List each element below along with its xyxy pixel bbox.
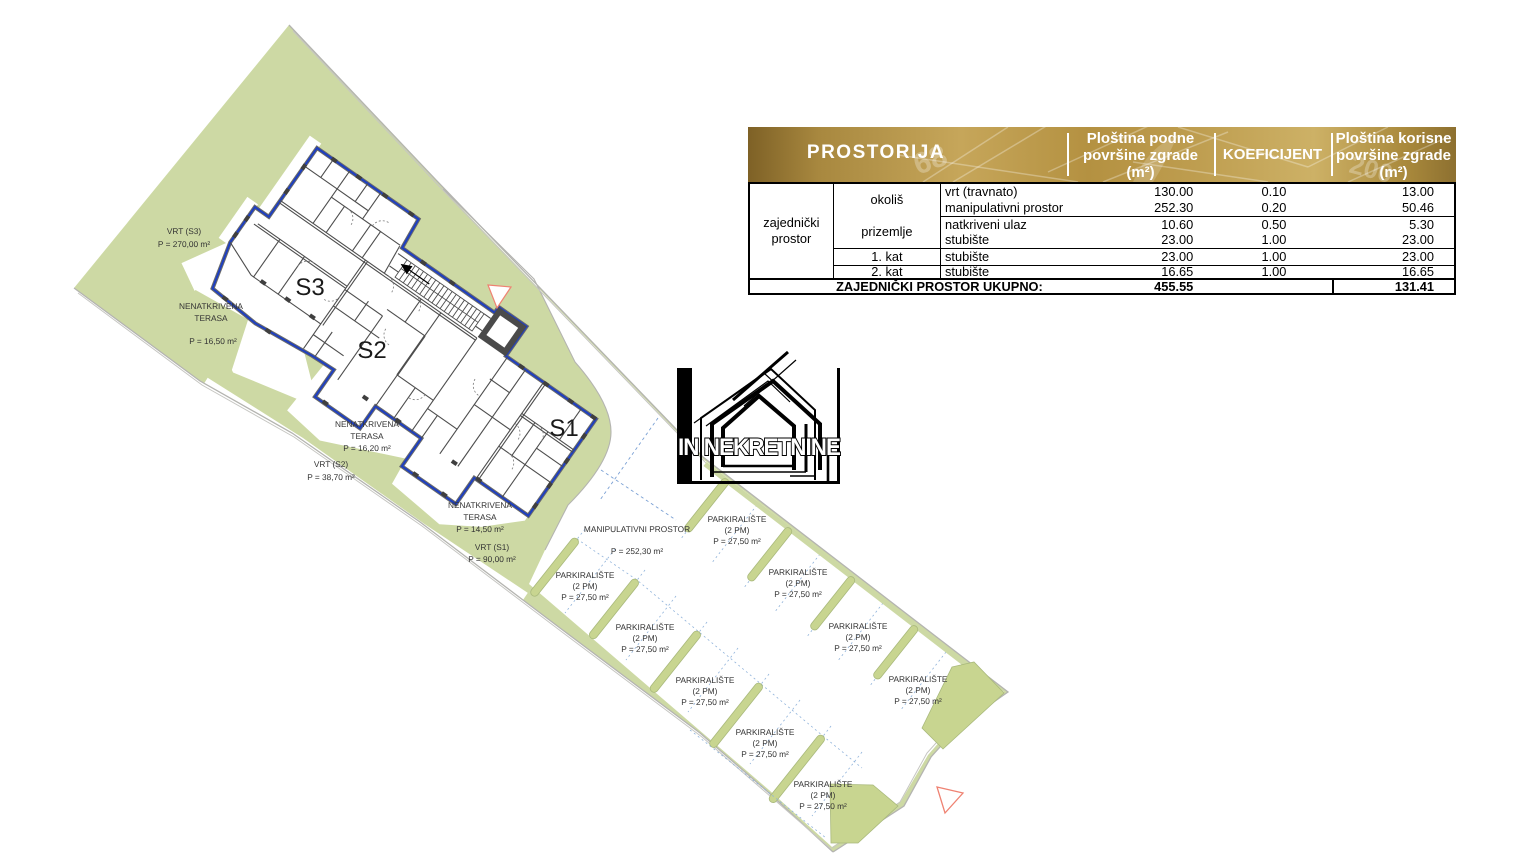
svg-text:P = 16,50 m²: P = 16,50 m² [189,336,237,346]
svg-text:(2 PM): (2 PM) [693,686,718,696]
svg-text:P = 27,50 m²: P = 27,50 m² [894,696,942,706]
svg-text:P = 27,50 m²: P = 27,50 m² [834,643,882,653]
svg-text:PARKIRALIŠTE: PARKIRALIŠTE [736,727,795,737]
svg-text:S2: S2 [357,337,386,364]
svg-text:NENATKRIVENA: NENATKRIVENA [448,500,512,510]
svg-text:P = 27,50 m²: P = 27,50 m² [774,589,822,599]
svg-text:P = 27,50 m²: P = 27,50 m² [561,592,609,602]
svg-text:P = 27,50 m²: P = 27,50 m² [681,697,729,707]
svg-text:PARKIRALIŠTE: PARKIRALIŠTE [769,567,828,577]
svg-text:P = 27,50 m²: P = 27,50 m² [741,749,789,759]
svg-text:P = 27,50 m²: P = 27,50 m² [799,801,847,811]
svg-text:(2 PM): (2 PM) [906,685,931,695]
svg-text:PARKIRALIŠTE: PARKIRALIŠTE [794,779,853,789]
svg-text:P = 252,30 m²: P = 252,30 m² [611,546,663,556]
svg-text:VRT (S1): VRT (S1) [475,542,510,552]
svg-text:(2 PM): (2 PM) [753,738,778,748]
svg-text:PARKIRALIŠTE: PARKIRALIŠTE [829,621,888,631]
svg-text:(2 PM): (2 PM) [573,581,598,591]
svg-text:P = 90,00 m²: P = 90,00 m² [468,554,516,564]
svg-text:(2 PM): (2 PM) [633,633,658,643]
svg-text:TERASA: TERASA [463,512,497,522]
svg-text:TERASA: TERASA [350,431,384,441]
svg-text:(2 PM): (2 PM) [846,632,871,642]
svg-text:PARKIRALIŠTE: PARKIRALIŠTE [708,514,767,524]
svg-text:PARKIRALIŠTE: PARKIRALIŠTE [616,622,675,632]
svg-text:MANIPULATIVNI PROSTOR: MANIPULATIVNI PROSTOR [584,524,690,534]
svg-text:P = 27,50 m²: P = 27,50 m² [713,536,761,546]
svg-text:TERASA: TERASA [194,313,228,323]
svg-text:PARKIRALIŠTE: PARKIRALIŠTE [556,570,615,580]
svg-text:P = 16,20 m²: P = 16,20 m² [343,443,391,453]
svg-text:PARKIRALIŠTE: PARKIRALIŠTE [889,674,948,684]
svg-text:P = 27,50 m²: P = 27,50 m² [621,644,669,654]
svg-text:S1: S1 [549,415,578,442]
svg-text:P = 14,50 m²: P = 14,50 m² [456,524,504,534]
svg-text:(2 PM): (2 PM) [786,578,811,588]
svg-text:P = 38,70 m²: P = 38,70 m² [307,472,355,482]
svg-text:NENATKRIVENA: NENATKRIVENA [335,419,399,429]
svg-text:(2 PM): (2 PM) [811,790,836,800]
svg-text:VRT (S3): VRT (S3) [167,226,202,236]
svg-text:IN NEKRETNINE: IN NEKRETNINE [678,434,841,461]
svg-text:P = 270,00 m²: P = 270,00 m² [158,239,210,249]
svg-text:PARKIRALIŠTE: PARKIRALIŠTE [676,675,735,685]
svg-text:VRT (S2): VRT (S2) [314,459,349,469]
svg-text:NENATKRIVENA: NENATKRIVENA [179,301,243,311]
svg-text:(2 PM): (2 PM) [725,525,750,535]
svg-text:S3: S3 [295,274,324,301]
